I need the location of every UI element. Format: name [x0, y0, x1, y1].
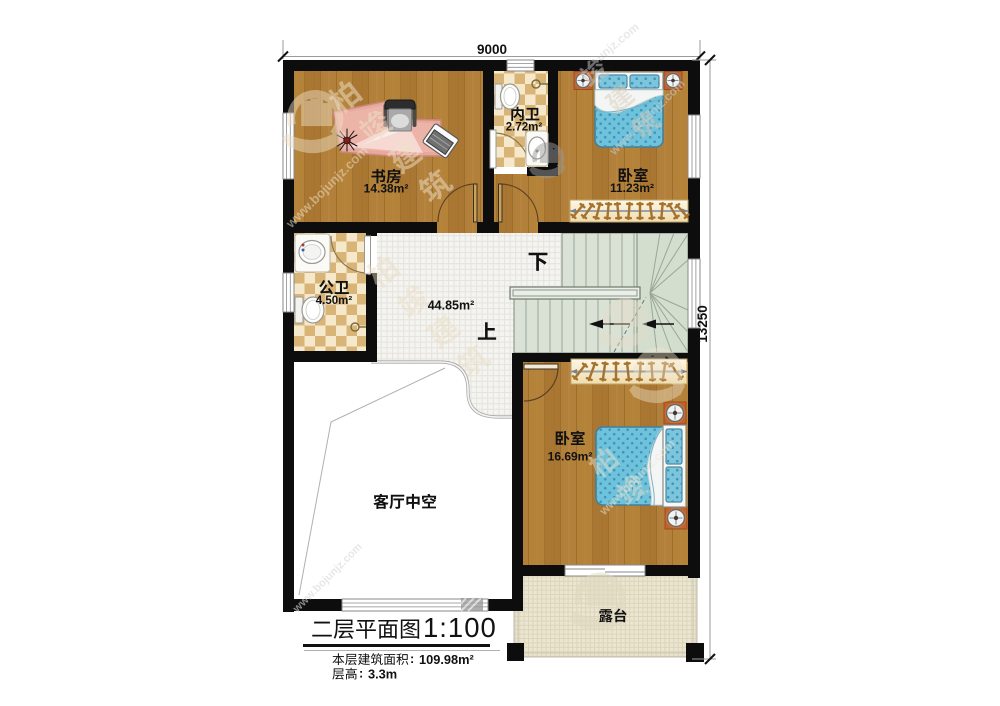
svg-text:2.72m²: 2.72m² [506, 122, 543, 134]
svg-text:16.69m²: 16.69m² [548, 450, 593, 464]
svg-text:4.50m²: 4.50m² [316, 295, 353, 307]
svg-text::: : [359, 666, 363, 681]
svg-text:109.98m²: 109.98m² [419, 652, 474, 667]
svg-text:3.3m: 3.3m [368, 667, 397, 682]
svg-text::: : [410, 651, 414, 666]
svg-text:13250: 13250 [695, 305, 710, 343]
svg-text:14.38m²: 14.38m² [364, 182, 409, 196]
svg-text:11.23m²: 11.23m² [610, 181, 654, 195]
svg-text:1:100: 1:100 [423, 612, 497, 643]
svg-text:9000: 9000 [477, 42, 507, 57]
svg-text:44.85m²: 44.85m² [428, 299, 475, 313]
